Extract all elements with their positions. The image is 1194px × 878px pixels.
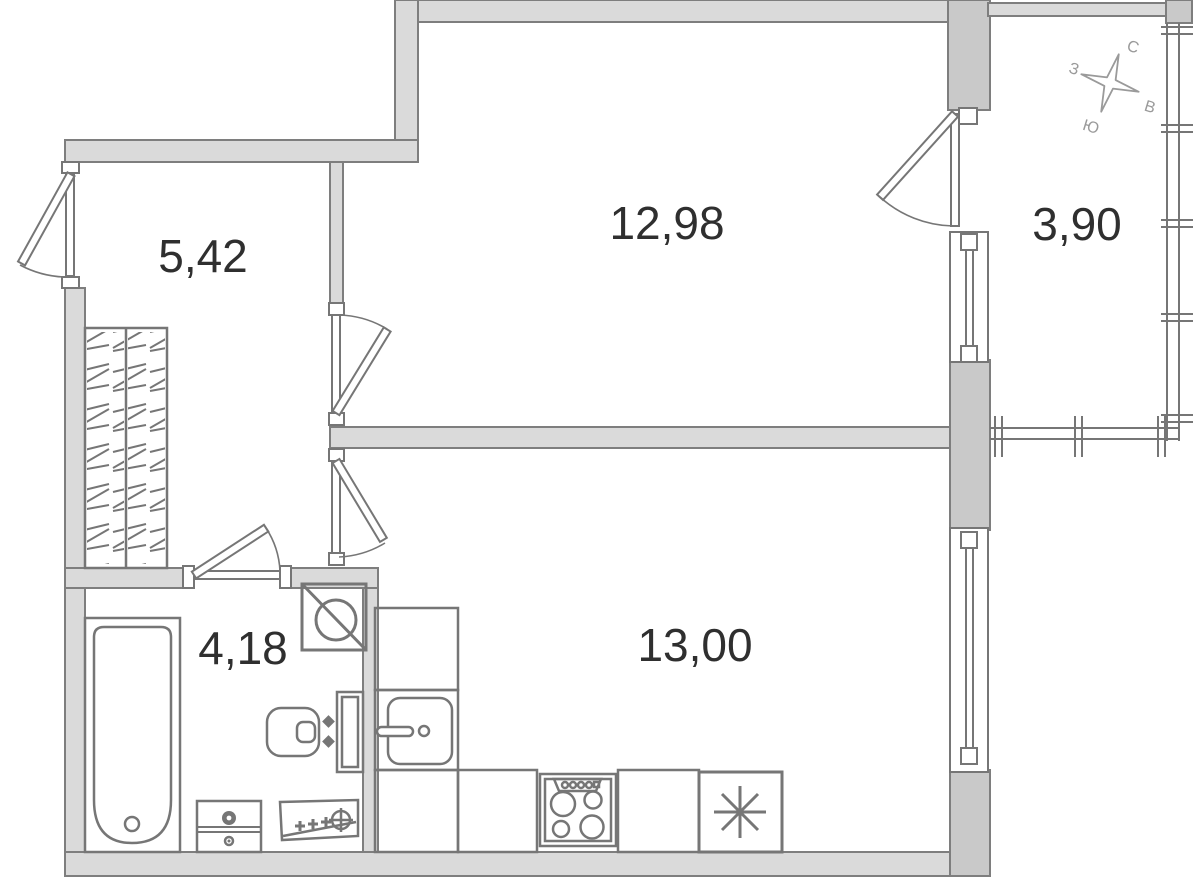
wall-right-mid-block <box>950 360 990 530</box>
door-living-room <box>329 303 391 425</box>
counter-cell <box>375 608 458 690</box>
balcony-window-frame <box>950 232 988 362</box>
balcony-door-window-unit <box>877 108 988 362</box>
door-kitchen-frame-top <box>329 449 344 461</box>
kitchen-window-frame <box>950 528 988 772</box>
entrance-door-frame-top <box>62 162 79 173</box>
wall-right-bottom-block <box>950 770 990 876</box>
room-label-bathroom: 4,18 <box>198 622 288 674</box>
kitchen-sink <box>377 698 452 764</box>
door-living-frame-top <box>329 303 344 315</box>
floor-plan-canvas: С В Ю З 5,42 12,98 3,90 4,18 13,00 <box>0 0 1194 878</box>
door-bathroom-frame-left <box>183 566 194 588</box>
washing-machine <box>302 584 366 650</box>
vanity-knob-bottom-center <box>228 840 231 843</box>
washbasin-valve-cross <box>329 808 353 832</box>
balcony-glazing-bottom <box>990 428 1180 439</box>
wall-top-living <box>395 0 988 22</box>
stove-inner <box>545 779 611 841</box>
balcony-door-frame-top <box>959 108 977 124</box>
door-living-swing-arc <box>340 315 387 329</box>
balcony-door-leaf-open <box>877 111 958 200</box>
balcony-window-cap-top <box>961 234 977 250</box>
balcony-window-cap-bottom <box>961 346 977 362</box>
room-label-balcony: 3,90 <box>1032 198 1122 250</box>
floor-plan: С В Ю З 5,42 12,98 3,90 4,18 13,00 <box>0 0 1194 878</box>
balcony-glazing-right <box>1167 23 1179 441</box>
vanity-cabinet-drawer-divider <box>197 827 261 832</box>
counter-cell <box>618 770 699 852</box>
toilet-bowl <box>267 708 319 756</box>
door-living-leaf-closed <box>332 315 340 413</box>
wall-mid-horizontal <box>330 427 950 448</box>
door-living-frame-bottom <box>329 413 344 425</box>
compass-rose: С В Ю З <box>1067 38 1158 138</box>
bathtub <box>85 618 180 852</box>
wall-step <box>395 0 418 162</box>
wall-balcony-top <box>988 3 1168 16</box>
toilet-bowl-inner <box>297 722 315 742</box>
kitchen-sink-drain <box>419 726 429 736</box>
wall-top-hallway <box>65 140 418 162</box>
compass-needle <box>1073 46 1148 121</box>
compass-east-label: В <box>1142 98 1157 117</box>
room-label-living-room: 12,98 <box>609 197 724 249</box>
entrance-door-swing-arc <box>20 265 64 277</box>
snowflake-icon <box>714 786 766 838</box>
toilet-button-bottom <box>322 735 335 748</box>
door-bathroom-swing-arc <box>266 528 280 571</box>
balcony-glazing-mullions-right <box>1161 27 1193 422</box>
vanity-cabinet <box>197 801 261 852</box>
stove-burners <box>551 792 604 839</box>
wardrobe-hatch-right <box>128 332 165 564</box>
wardrobe <box>85 328 167 568</box>
wall-right-top-block <box>948 0 990 110</box>
bathtub-drain <box>125 817 139 831</box>
door-kitchen-swing-arc <box>339 543 385 557</box>
balcony-glazing-mullions-bottom <box>995 416 1165 457</box>
wall-balcony-corner <box>1166 0 1192 23</box>
kitchen-window-cap-top <box>961 532 977 548</box>
wall-bathroom-top-left <box>65 568 187 588</box>
balcony-door-leaf-closed <box>951 114 959 226</box>
compass-south-label: Ю <box>1081 117 1101 138</box>
washbasin <box>280 800 358 840</box>
refrigerator <box>699 772 782 852</box>
stove-knobs <box>562 782 599 788</box>
door-living-leaf-open <box>333 327 391 415</box>
counter-cell <box>375 770 458 852</box>
wall-bottom <box>65 852 990 876</box>
door-bathroom-frame-right <box>280 566 291 588</box>
wardrobe-hatch-left <box>87 332 124 564</box>
toilet <box>267 692 363 772</box>
kitchen-window <box>950 528 988 772</box>
counter-cell <box>458 770 537 852</box>
compass-west-label: З <box>1067 60 1081 79</box>
toilet-cistern-inner <box>342 697 358 767</box>
door-bathroom <box>183 525 291 588</box>
room-label-hallway: 5,42 <box>158 230 248 282</box>
bathtub-basin <box>94 627 171 843</box>
vanity-knob-top-center <box>227 816 232 821</box>
room-label-kitchen: 13,00 <box>637 619 752 671</box>
balcony-door-swing-arc <box>880 197 953 226</box>
kitchen-window-cap-bottom <box>961 748 977 764</box>
wall-hallway-vertical <box>330 162 343 303</box>
kitchen-sink-faucet <box>377 727 413 736</box>
stove <box>540 774 616 846</box>
toilet-button-top <box>322 715 335 728</box>
entrance-door-frame-bottom <box>62 277 79 288</box>
entrance-door <box>18 162 79 288</box>
door-kitchen-frame-bottom <box>329 553 344 565</box>
door-kitchen <box>329 449 387 565</box>
compass-north-label: С <box>1125 38 1141 58</box>
